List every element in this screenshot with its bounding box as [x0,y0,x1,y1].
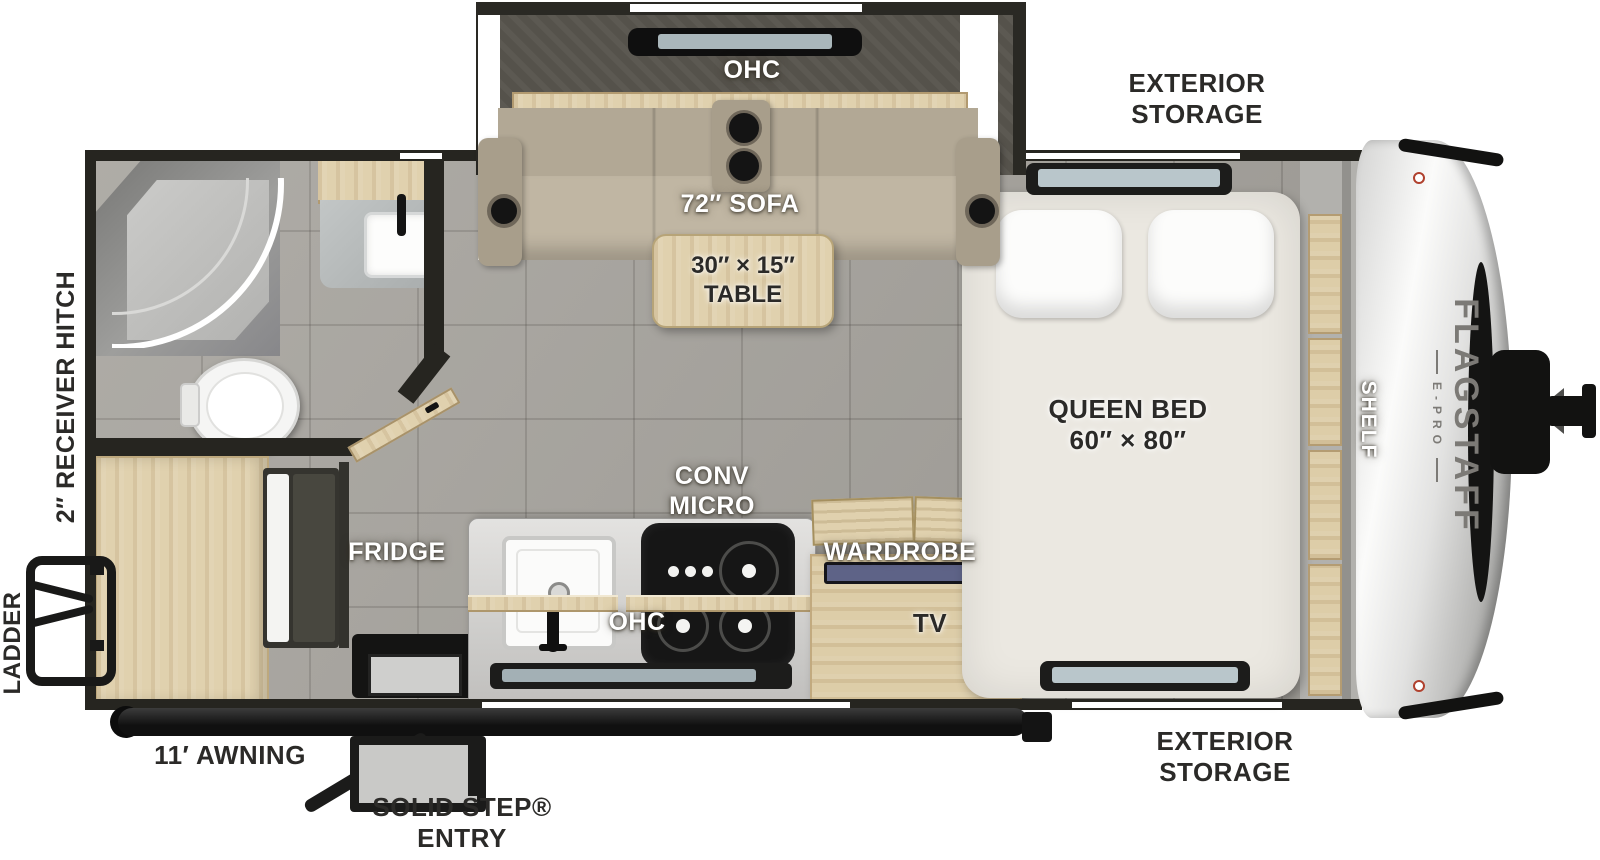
label-ladder: LADDER [0,569,29,717]
bath-wall-right [424,156,444,358]
hitch-jack-housing [1490,350,1550,474]
cap-rivet [1413,172,1425,184]
console-cupholder [726,148,762,184]
bed-shelf-slat [1308,564,1342,696]
toilet-hinge [180,383,200,427]
label-fridge: FRIDGE [315,538,479,568]
awning-bracket [1022,712,1052,742]
hitch-coupler-end [1582,384,1596,438]
cooktop-knob [685,566,696,577]
bed-window-bottom-glass [1052,667,1238,683]
fridge-door [267,474,289,642]
label-ohc-slide: OHC [700,56,804,86]
window-slit-bed-top [1004,153,1240,159]
door-handle [424,402,439,414]
toilet-seat [206,372,284,440]
bed-shelf-slat [1308,214,1342,334]
kitchen-faucet-handle [539,644,567,651]
brand-name: FLAGSTAFF [1447,298,1486,534]
label-ohc-kitchen: OHC [585,608,689,638]
table-label: 30″ × 15″ TABLE [691,252,795,310]
label-wardrobe: WARDROBE [798,538,1002,568]
cap-rivet [1413,680,1425,692]
label-awning: 11′ AWNING [108,740,352,771]
dinette-table: 30″ × 15″ TABLE [652,234,834,328]
entry-step-post [468,740,477,796]
pillow [1148,210,1274,318]
kitchen-window-glass [502,669,756,682]
label-solid-step: SOLID STEP® ENTRY [330,792,594,854]
shower-door-arc [112,178,284,348]
rv-floorplan: 30″ × 15″ TABLE FLAGSTAFF E-PRO OHC 72″ … [0,0,1600,860]
window-slit-bath [400,153,442,159]
bath-overhead-cabinet [318,156,436,204]
awning-rail [118,708,1028,736]
label-exterior-storage-bottom: EXTERIOR STORAGE [1094,726,1356,788]
label-sofa: 72″ SOFA [638,190,842,220]
label-queen-bed: QUEEN BED 60″ × 80″ [998,394,1258,456]
cupholder [965,194,999,228]
rear-cabinet [95,456,269,704]
bed-window-top-glass [1038,169,1220,187]
console-cupholder [726,110,762,146]
burner-large [719,541,779,601]
pillow [996,210,1122,318]
ladder-bracket [90,640,104,651]
bath-wall-bottom [95,438,367,456]
ladder-bracket [90,564,104,575]
label-receiver-hitch: 2″ RECEIVER HITCH [51,257,83,537]
bath-faucet [397,194,406,236]
brand-sub: E-PRO [1431,350,1445,482]
slide-vent-glass [658,34,832,49]
window-slit-kitchen [482,702,850,708]
slide-window-slit [630,4,862,12]
label-exterior-storage-top: EXTERIOR STORAGE [1066,68,1328,130]
brand-mark: FLAGSTAFF E-PRO [1426,261,1490,571]
cooktop-knob [702,566,713,577]
label-shelf: SHELF [1336,372,1380,468]
entry-step-well-tread [368,654,462,696]
label-conv-micro: CONV MICRO [630,462,794,521]
label-tv: TV [878,608,982,639]
cooktop-knob [668,566,679,577]
cupholder [487,194,521,228]
window-slit-bed-bottom [1072,702,1282,708]
